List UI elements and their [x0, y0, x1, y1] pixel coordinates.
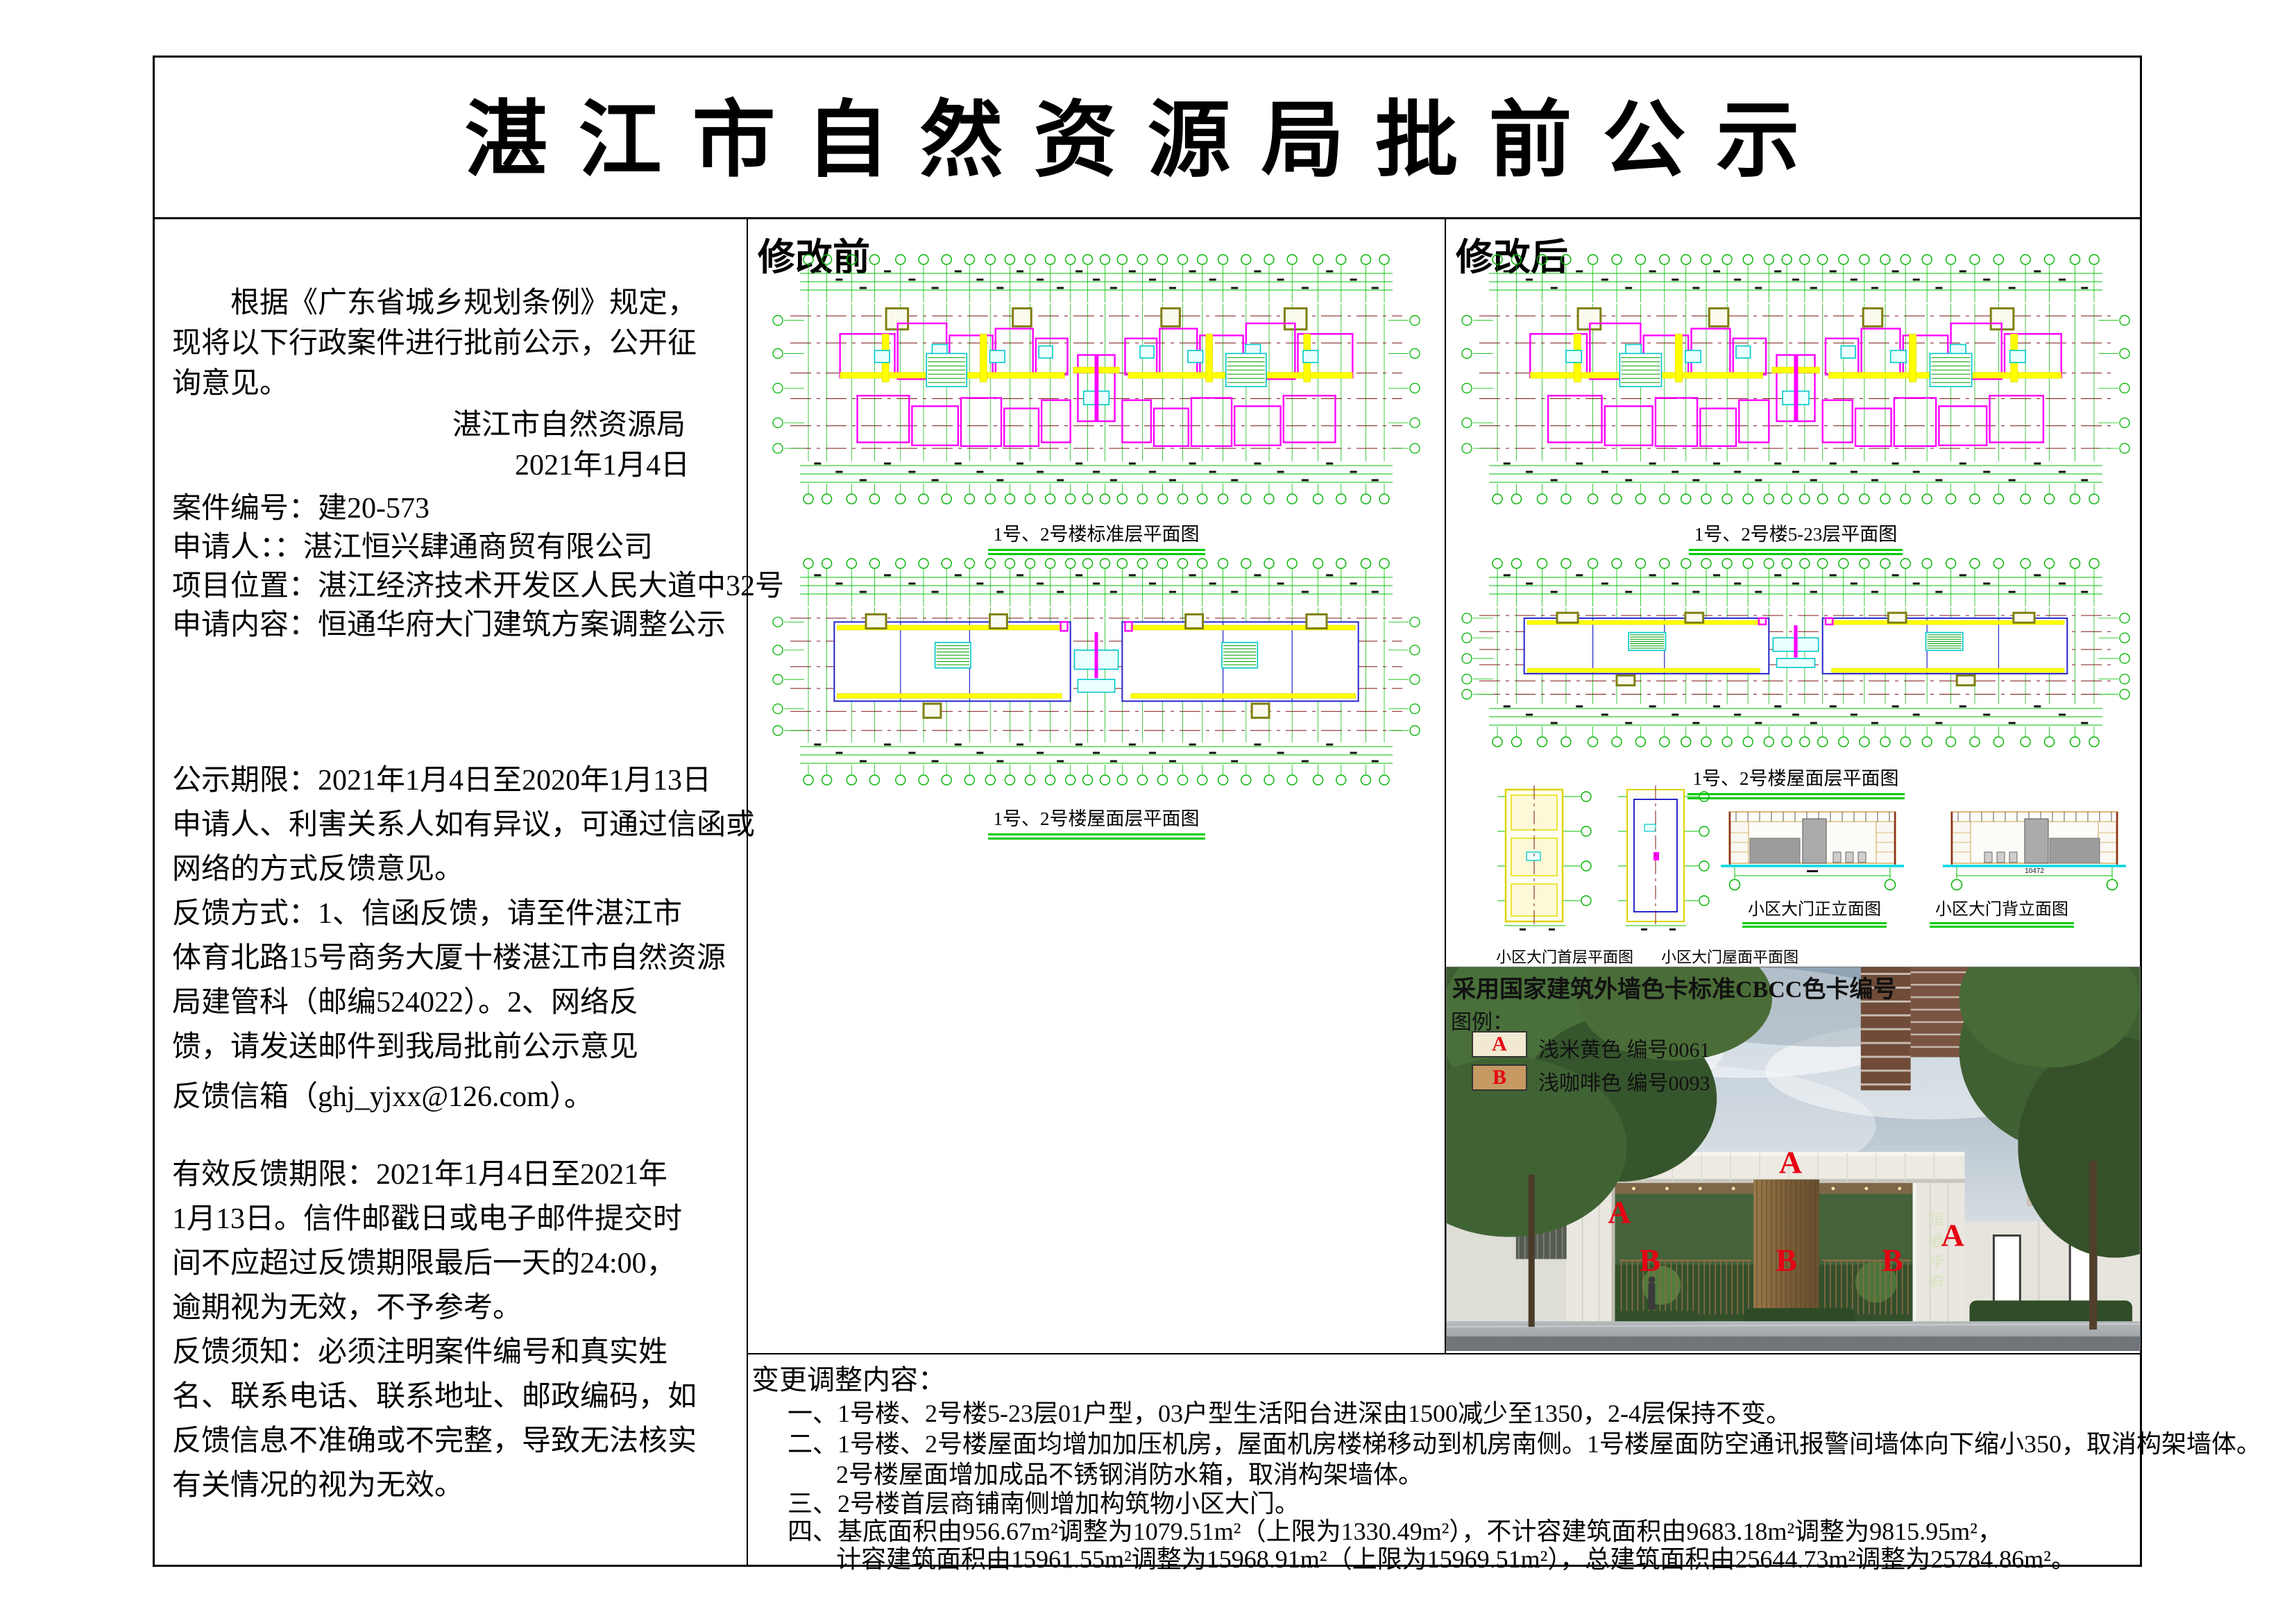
legend-a-code: 编号0061 — [1627, 1039, 1710, 1062]
feedback-line: 名、联系电话、联系地址、邮政编码，如 — [172, 1379, 697, 1414]
before-fig2-caption: 1号、2号楼屋面层平面图 — [988, 804, 1205, 840]
before-fig2-caption-box: 1号、2号楼屋面层平面图 — [767, 804, 1426, 840]
before-fig1-caption-box: 1号、2号楼标准层平面图 — [767, 519, 1426, 555]
changes-separator — [747, 1353, 2142, 1354]
notice-line: 网络的方式反馈意见。 — [172, 852, 464, 887]
feedback-line: 有效反馈期限：2021年1月4日至2021年 — [172, 1157, 667, 1192]
change-item-line: 计容建筑面积由15961.55m²调整为15968.91m²（上限为15969.… — [836, 1539, 2076, 1575]
notice-line: 体育北路15号商务大厦十楼湛江市自然资源 — [172, 941, 726, 976]
notice-line: 申请人、利害关系人如有异议，可通过信函或 — [172, 808, 755, 842]
divider-left — [747, 217, 748, 1567]
after-fig1-caption: 1号、2号楼5-23层平面图 — [1689, 519, 1903, 555]
notice-line: 反馈方式：1、信函反馈，请至件湛江市 — [172, 897, 682, 931]
notice-line: 反馈信箱（ghj_yjxx@126.com）。 — [172, 1080, 593, 1114]
notice-line: 馈，请发送邮件到我局批前公示意见 — [172, 1030, 638, 1064]
gate-elev2-caption: 小区大门背立面图 — [1930, 895, 2074, 928]
feedback-line: 反馈须知：必须注明案件编号和真实姓 — [172, 1335, 667, 1370]
gate-elevations: 10472 — [1721, 806, 2137, 892]
feedback-line: 间不应超过反馈期限最后一天的24:00， — [172, 1246, 676, 1281]
agency-line: 湛江市自然资源局 — [452, 408, 686, 443]
svg-text:10472: 10472 — [2025, 867, 2044, 875]
intro-line: 询意见。 — [172, 366, 289, 401]
legend-b-code: 编号0093 — [1627, 1072, 1710, 1095]
legend-label-b: 浅咖啡色 编号0093 — [1538, 1066, 1710, 1096]
feedback-line: 有关情况的视为无效。 — [172, 1468, 464, 1503]
feedback-line: 反馈信息不准确或不完整，导致无法核实 — [172, 1424, 697, 1459]
legend-b-name: 浅咖啡色 — [1538, 1072, 1622, 1095]
paint-annotation-a: A — [1608, 1193, 1631, 1230]
legend-a-name: 浅米黄色 — [1538, 1039, 1622, 1062]
legend-label-a: 浅米黄色 编号0061 — [1538, 1033, 1710, 1063]
case-line: 申请内容：恒通华府大门建筑方案调整公示 — [172, 608, 726, 643]
floorplan-before-roof — [767, 554, 1426, 798]
intro-line: 根据《广东省城乡规划条例》规定， — [172, 286, 697, 321]
gate-elev1-caption: 小区大门正立面图 — [1742, 895, 1887, 928]
page-title: 湛江市自然资源局批前公示 — [153, 72, 2142, 193]
legend-swatch-b: B — [1472, 1064, 1527, 1091]
floorplan-after-roof — [1456, 554, 2136, 760]
paint-annotation-b: B — [1882, 1241, 1903, 1278]
gate-rendering-photo: 采用国家建筑外墙色卡标准CBCC色卡编号 图例： A 浅米黄色 编号0061 B… — [1446, 967, 2141, 1351]
announcement-page: 湛江市自然资源局批前公示 湛江市自然资源局 2021年1月4日 修改前 1号、2… — [0, 0, 2296, 1623]
legend-swatch-a: A — [1472, 1031, 1527, 1057]
floorplan-before-standard — [767, 250, 1426, 517]
paint-annotation-a: A — [1941, 1216, 1964, 1253]
case-line: 项目位置：湛江经济技术开发区人民大道中32号 — [172, 569, 784, 604]
paint-annotation-b: B — [1776, 1241, 1797, 1278]
paint-annotation-a: A — [1779, 1144, 1802, 1180]
feedback-line: 1月13日。信件邮戳日或电子邮件提交时 — [172, 1202, 682, 1237]
changes-heading: 变更调整内容： — [751, 1357, 946, 1397]
floorplan-after-5-23 — [1456, 250, 2136, 517]
intro-line: 现将以下行政案件进行批前公示，公开征 — [172, 326, 697, 361]
case-line: 申请人：：湛江恒兴肆通商贸有限公司 — [172, 530, 653, 565]
title-rule — [153, 217, 2142, 219]
after-fig1-caption-box: 1号、2号楼5-23层平面图 — [1456, 519, 2136, 555]
before-fig1-caption: 1号、2号楼标准层平面图 — [988, 519, 1205, 555]
gate-elev2-caption-box: 小区大门背立面图 — [1919, 895, 2085, 928]
notice-line: 公示期限：2021年1月4日至2020年1月13日 — [172, 763, 711, 798]
notice-line: 局建管科（邮编524022）。2、网络反 — [172, 985, 638, 1020]
gate-plan-strips — [1485, 783, 1721, 941]
case-line: 案件编号：建20-573 — [172, 491, 430, 526]
paint-annotation-b: B — [1639, 1241, 1660, 1278]
date-line: 2021年1月4日 — [515, 448, 690, 483]
cbcc-heading: 采用国家建筑外墙色卡标准CBCC色卡编号 — [1452, 970, 1896, 1004]
gate-elev1-caption-box: 小区大门正立面图 — [1731, 895, 1898, 928]
feedback-line: 逾期视为无效，不予参考。 — [172, 1291, 522, 1325]
